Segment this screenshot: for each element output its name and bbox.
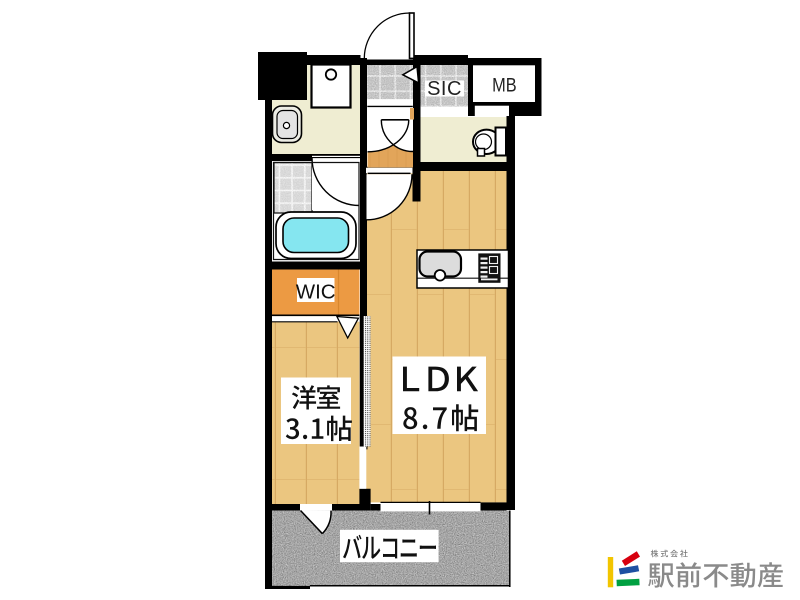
svg-text:WIC: WIC [296, 281, 336, 304]
svg-text:SIC: SIC [427, 78, 462, 100]
svg-text:MB: MB [492, 75, 517, 97]
